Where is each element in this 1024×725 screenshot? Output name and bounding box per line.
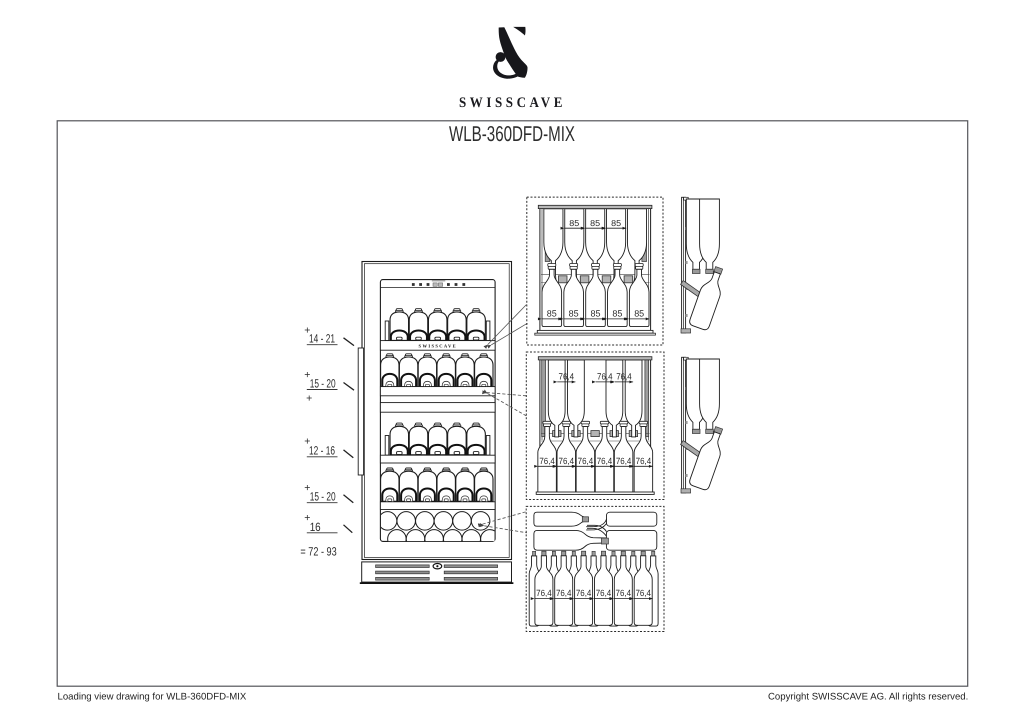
- svg-text:76,4: 76,4: [597, 456, 613, 466]
- svg-text:15 - 20: 15 - 20: [310, 376, 336, 390]
- svg-text:85: 85: [569, 309, 579, 319]
- svg-text:76,4: 76,4: [616, 456, 632, 466]
- svg-text:+: +: [306, 393, 312, 405]
- svg-text:85: 85: [591, 309, 601, 319]
- svg-text:Loading view drawing for WLB-3: Loading view drawing for WLB-360DFD-MIX: [58, 692, 247, 703]
- svg-text:85: 85: [547, 309, 557, 319]
- svg-text:76,4: 76,4: [578, 456, 594, 466]
- svg-text:76,4: 76,4: [556, 588, 572, 598]
- svg-text:12 - 16: 12 - 16: [309, 444, 335, 458]
- svg-text:76,4: 76,4: [559, 372, 575, 382]
- svg-text:85: 85: [611, 218, 621, 228]
- svg-text:76,4: 76,4: [536, 588, 552, 598]
- svg-text:Copyright SWISSCAVE AG. All ri: Copyright SWISSCAVE AG. All rights reser…: [768, 692, 968, 703]
- svg-text:76,4: 76,4: [616, 372, 632, 382]
- svg-text:SWISSCAVE: SWISSCAVE: [419, 343, 458, 348]
- svg-text:76,4: 76,4: [576, 588, 592, 598]
- svg-text:76,4: 76,4: [635, 588, 651, 598]
- svg-text:85: 85: [590, 218, 600, 228]
- svg-text:76,4: 76,4: [596, 588, 612, 598]
- svg-text:WLB-360DFD-MIX: WLB-360DFD-MIX: [449, 122, 575, 146]
- svg-text:85: 85: [569, 218, 579, 228]
- svg-text:85: 85: [634, 309, 644, 319]
- svg-text:85: 85: [612, 309, 622, 319]
- svg-text:76,4: 76,4: [539, 456, 555, 466]
- svg-text:76,4: 76,4: [616, 588, 632, 598]
- svg-text:76,4: 76,4: [597, 372, 613, 382]
- svg-text:SWISSCAVE: SWISSCAVE: [459, 95, 566, 111]
- svg-text:= 72 - 93: = 72 - 93: [300, 545, 337, 559]
- svg-text:16: 16: [310, 520, 321, 534]
- svg-text:14 - 21: 14 - 21: [309, 332, 335, 346]
- svg-text:76,4: 76,4: [559, 456, 575, 466]
- svg-text:15 - 20: 15 - 20: [310, 490, 336, 504]
- svg-text:76,4: 76,4: [636, 456, 652, 466]
